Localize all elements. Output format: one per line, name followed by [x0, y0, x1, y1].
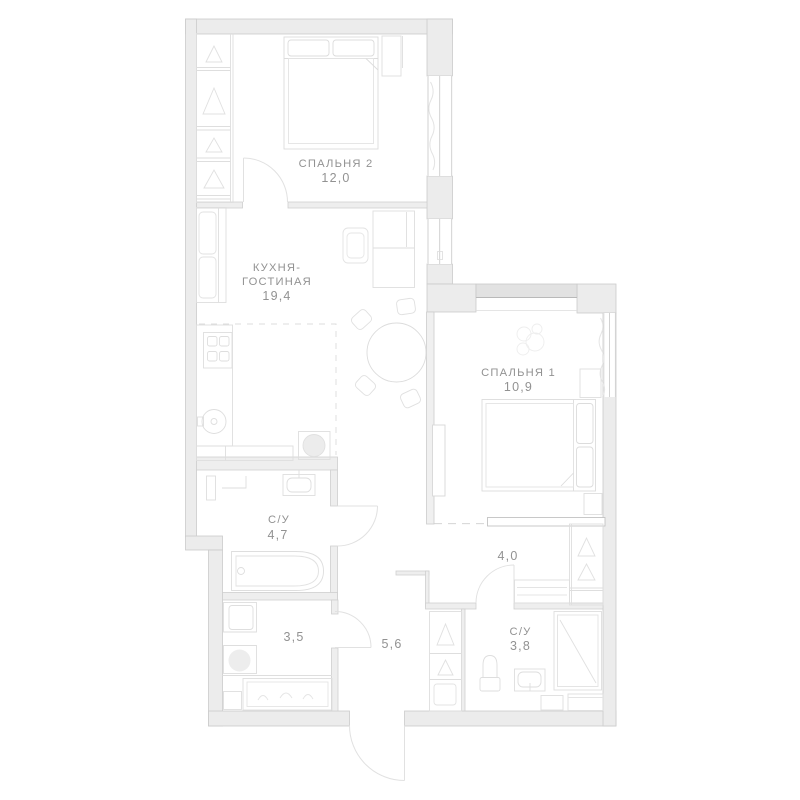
- svg-text:СПАЛЬНЯ 2: СПАЛЬНЯ 2: [299, 158, 374, 170]
- svg-text:ГОСТИНАЯ: ГОСТИНАЯ: [242, 276, 312, 288]
- svg-text:19,4: 19,4: [262, 289, 291, 303]
- svg-text:С/У: С/У: [268, 514, 290, 526]
- svg-text:КУХНЯ-: КУХНЯ-: [253, 262, 301, 274]
- svg-text:3,5: 3,5: [284, 630, 305, 644]
- svg-text:10,9: 10,9: [504, 380, 533, 394]
- svg-text:С/У: С/У: [510, 626, 532, 638]
- svg-text:12,0: 12,0: [321, 171, 350, 185]
- svg-text:СПАЛЬНЯ 1: СПАЛЬНЯ 1: [481, 367, 556, 379]
- svg-text:5,6: 5,6: [382, 637, 403, 651]
- svg-text:4,0: 4,0: [498, 549, 519, 563]
- svg-text:4,7: 4,7: [268, 528, 289, 542]
- svg-text:3,8: 3,8: [510, 639, 531, 653]
